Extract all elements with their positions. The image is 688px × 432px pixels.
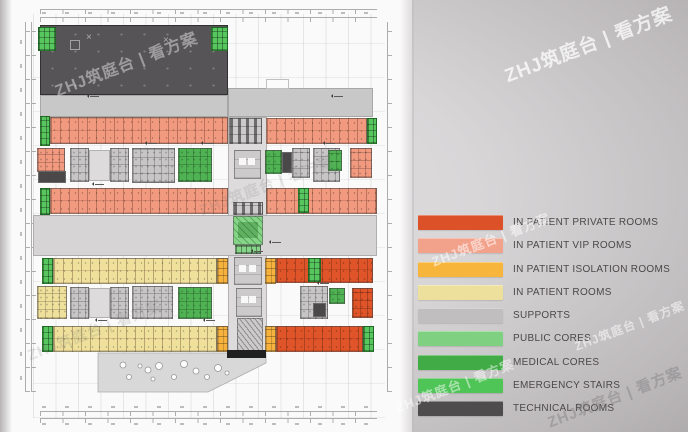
legend-item-private: IN PATIENT PRIVATE ROOMS [418,215,670,230]
zone-vip-row-se [266,188,377,214]
zone-stair-top-left [38,27,56,51]
legend-swatch-vip [418,238,503,253]
zone-supports-strip-west [40,95,228,117]
zone-elevator-core-north [229,118,262,144]
dimension-text-row [42,423,375,425]
zone-roof-notch [266,79,289,89]
elevation-marker [320,283,329,284]
elevation-marker [254,251,263,252]
legend-label-supports: SUPPORTS [513,310,570,321]
legend-swatch-supports [418,308,503,323]
zone-entry-bar [227,350,266,358]
zone-support-rooms-d [292,148,310,178]
zone-stair-west-a [40,116,50,146]
zone-elevator-bank-upper [233,202,263,215]
zone-core-hall-south [236,288,262,317]
legend-label-rooms: IN PATIENT ROOMS [513,287,612,298]
zone-supports-band [33,215,377,256]
zone-vip-block-west [37,148,65,172]
legend-item-medical: MEDICAL CORES [418,355,670,370]
zone-elevator-lobby [234,257,262,285]
zone-support-rooms-c [132,148,175,183]
legend-swatch-public [418,331,503,346]
zone-patient-rooms-row2 [53,326,217,352]
legend-swatch-rooms [418,285,503,300]
zone-escalator-core [237,318,263,351]
zone-private-block-east [352,288,373,318]
elevation-marker [326,143,335,144]
zone-stair-west-b [40,188,50,215]
legend-swatch-isolation [418,262,503,277]
elevation-marker [148,143,157,144]
dimension-line-bottom [40,411,377,417]
dimension-text-row [42,12,375,14]
zone-support-rooms-b [110,148,129,182]
zone-stair-west-d [42,326,53,352]
zone-support-rooms-g [110,287,129,319]
plan-sheet: × × [0,0,412,432]
legend-item-isolation: IN PATIENT ISOLATION ROOMS [418,262,670,277]
legend-swatch-medical [418,355,503,370]
zone-rooms-block-west [37,286,67,319]
zone-dark-room-west [38,171,66,183]
dimension-line-top [40,17,377,23]
zone-private-rooms-row2 [276,326,363,352]
elevation-marker [90,96,99,97]
elevation-marker [334,96,343,97]
legend-label-technical: TECHNICAL ROOMS [513,403,614,414]
zone-medical-core-ne1 [265,150,282,174]
zone-medical-core-se [329,288,345,304]
dimension-line-right [387,22,393,392]
legend-swatch-technical [418,401,503,416]
roof-hatch-square [70,40,80,50]
legend-label-emergency: EMERGENCY STAIRS [513,380,620,391]
legend-swatch-emergency [418,378,503,393]
legend-label-vip: IN PATIENT VIP ROOMS [513,240,632,251]
zone-stair-east-a [367,118,377,144]
legend-item-vip: IN PATIENT VIP ROOMS [418,238,670,253]
zone-corridor-a [89,150,110,181]
zone-public-core [233,216,263,245]
legend-swatch-private [418,215,503,230]
zone-vip-row-nw [50,117,228,144]
zone-public-core-cells [235,245,261,254]
zone-support-rooms-f [70,287,89,319]
zone-stair-top-right [211,27,228,51]
watermark: ZHJ筑庭台 | 看方案 [500,0,676,88]
legend-item-supports: SUPPORTS [418,308,670,323]
legend-item-rooms: IN PATIENT ROOMS [418,285,670,300]
zone-vip-block-east [350,148,372,178]
elevation-marker [95,184,104,185]
zone-medical-core-sw [178,287,212,319]
legend: IN PATIENT PRIVATE ROOMSIN PATIENT VIP R… [418,215,670,425]
slide: × × IN PATIENT PRIVATE ROOMSIN PATIENT V… [0,0,688,432]
legend-label-isolation: IN PATIENT ISOLATION ROOMS [513,264,670,275]
zone-stair-west-c [42,258,53,284]
dimension-line-left [31,22,37,392]
zone-core-hall-north [234,150,261,179]
legend-item-public: PUBLIC CORES [418,331,670,346]
zone-patient-rooms-row1 [53,258,217,284]
zone-stair-east-b [308,258,321,282]
zone-isolation-west-b [217,326,228,352]
legend-item-emergency: EMERGENCY STAIRS [418,378,670,393]
zone-support-rooms-h [132,286,173,319]
legend-label-private: IN PATIENT PRIVATE ROOMS [513,217,658,228]
zone-stair-mid-east [298,188,309,213]
dimension-text-col [20,30,22,380]
zone-medical-core-ne2 [328,150,342,171]
zone-stair-east-c [363,326,374,352]
elevation-marker [206,320,215,321]
zone-isolation-east-a [265,258,276,284]
zone-support-rooms-a [70,148,89,182]
elevation-marker [98,320,107,321]
zone-corridor-b [89,288,110,318]
zone-supports-strip-east [228,88,373,117]
elevation-marker [204,143,213,144]
elevation-marker [272,242,281,243]
dimension-text-row [42,406,375,408]
zone-dark-room-east [282,152,292,173]
zone-dark-room-south [313,303,326,317]
zone-isolation-west-a [217,258,228,284]
zone-private-rooms-row1 [276,258,373,283]
legend-label-public: PUBLIC CORES [513,333,591,344]
roof-mark-x-icon: × [86,33,92,43]
legend-item-technical: TECHNICAL ROOMS [418,401,670,416]
zone-vip-row-sw [50,188,228,214]
zone-vip-row-ne [266,118,367,144]
roof-mark-x-icon: × [163,36,169,46]
zone-technical-block [40,25,228,95]
legend-label-medical: MEDICAL CORES [513,357,599,368]
zone-isolation-east-b [265,326,276,352]
zone-medical-core-nw [178,148,212,182]
